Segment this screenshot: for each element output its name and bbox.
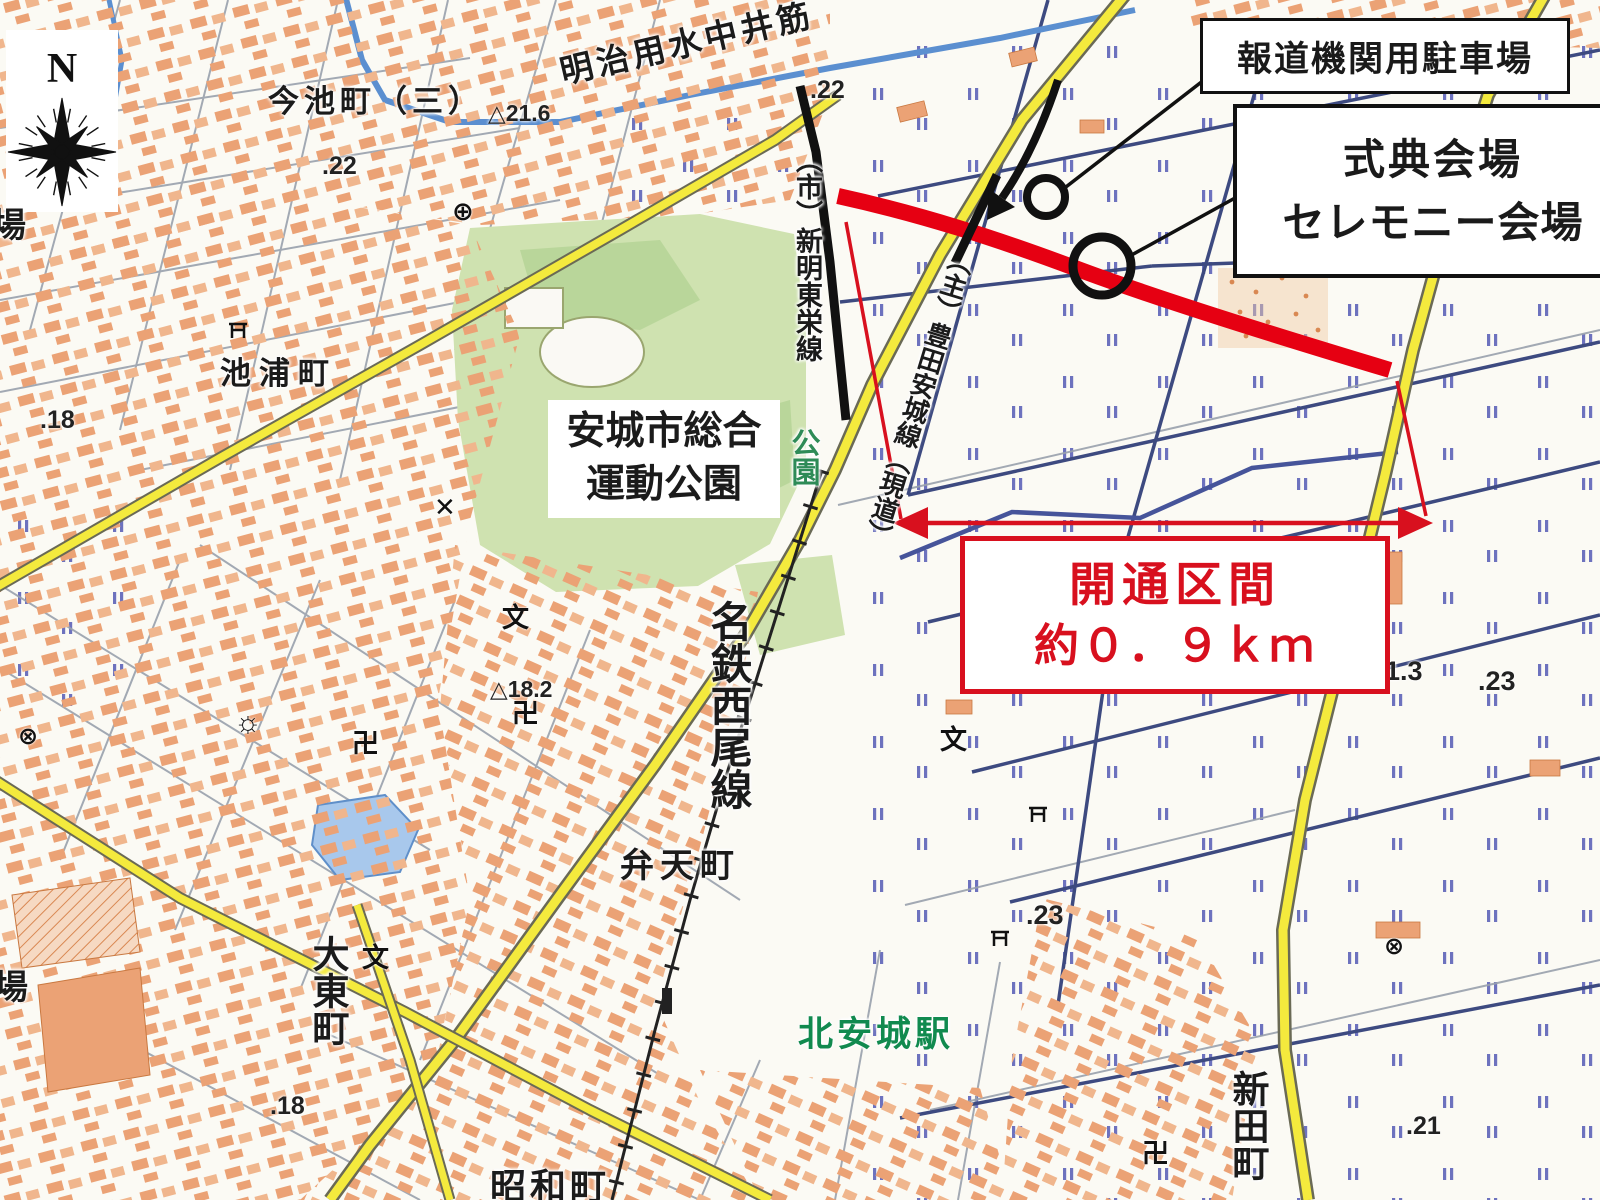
opening-line2: 約０．９ｋｍ: [1034, 616, 1316, 677]
elevation-mark: .23: [1026, 900, 1064, 931]
temple-icon: 卍: [352, 722, 379, 761]
press-parking-text: 報道機関用駐車場: [1237, 31, 1533, 82]
label-kita-anjo-station: 北安城駅: [798, 1006, 954, 1057]
sports-park-line2: 運動公園: [586, 459, 742, 512]
compass-rose-icon: N: [6, 30, 118, 212]
label-partial-bottom-left: 場: [0, 960, 28, 1009]
label-imaike-cho: 今池町（三）: [268, 76, 484, 121]
label-shinmei-toei-line: （市）新明東栄線: [788, 146, 827, 362]
police-icon: ⊗: [18, 722, 38, 751]
elevation-mark: .18: [270, 1092, 305, 1121]
label-daito-cho: 大東町: [300, 935, 354, 1046]
elevation-mark: .18: [40, 406, 75, 435]
compass-north-label: N: [47, 46, 77, 92]
ceremony-line1: 式典会場: [1343, 128, 1523, 191]
ceremony-venue-callout: 式典会場 セレモニー会場: [1233, 104, 1600, 278]
school-icon: 文: [362, 936, 389, 975]
label-benten-cho: 弁天町: [620, 838, 740, 887]
school-icon: 文: [940, 718, 967, 757]
temple-icon: 卍: [512, 692, 539, 731]
opening-line1: 開通区間: [1069, 553, 1281, 616]
sports-park-label-box: 安城市総合 運動公園: [548, 400, 780, 518]
sports-park-line1: 安城市総合: [566, 406, 761, 459]
elevation-mark: .22: [810, 76, 845, 105]
station-marker: [662, 988, 672, 1014]
town-office-icon: ☼: [234, 706, 262, 740]
opening-section-callout: 開通区間 約０．９ｋｍ: [960, 536, 1390, 694]
label-meitetsu-nishio-line: 名鉄西尾線: [698, 600, 759, 810]
press-parking-callout: 報道機関用駐車場: [1200, 18, 1570, 94]
compass-panel: N: [6, 30, 118, 212]
elevation-mark: △21.6: [488, 100, 550, 127]
police-icon: ⊗: [1384, 932, 1404, 961]
crossing-icon: ✕: [434, 492, 456, 523]
label-partial-top-left: 場: [0, 198, 26, 247]
label-ikeura-cho: 池浦町: [220, 348, 337, 393]
elevation-mark: .22: [322, 152, 357, 181]
temple-icon: 卍: [1142, 1132, 1169, 1171]
label-park: 公園: [782, 428, 824, 486]
large-building: [38, 968, 150, 1092]
elevation-mark: .23: [1478, 666, 1516, 697]
map-screenshot: N 今池町（三） 明治用水中井筋 池浦町 （市）新明東栄線 （主）豊田: [0, 0, 1600, 1200]
label-showa-cho: 昭和町: [490, 1158, 610, 1200]
ceremony-line2: セレモニー会場: [1282, 191, 1583, 254]
school-icon: 文: [502, 596, 529, 635]
benchmark-icon: ⊕: [452, 196, 474, 227]
label-shinden-cho: 新田町: [1220, 1070, 1274, 1181]
elevation-mark: .21: [1406, 1112, 1441, 1141]
